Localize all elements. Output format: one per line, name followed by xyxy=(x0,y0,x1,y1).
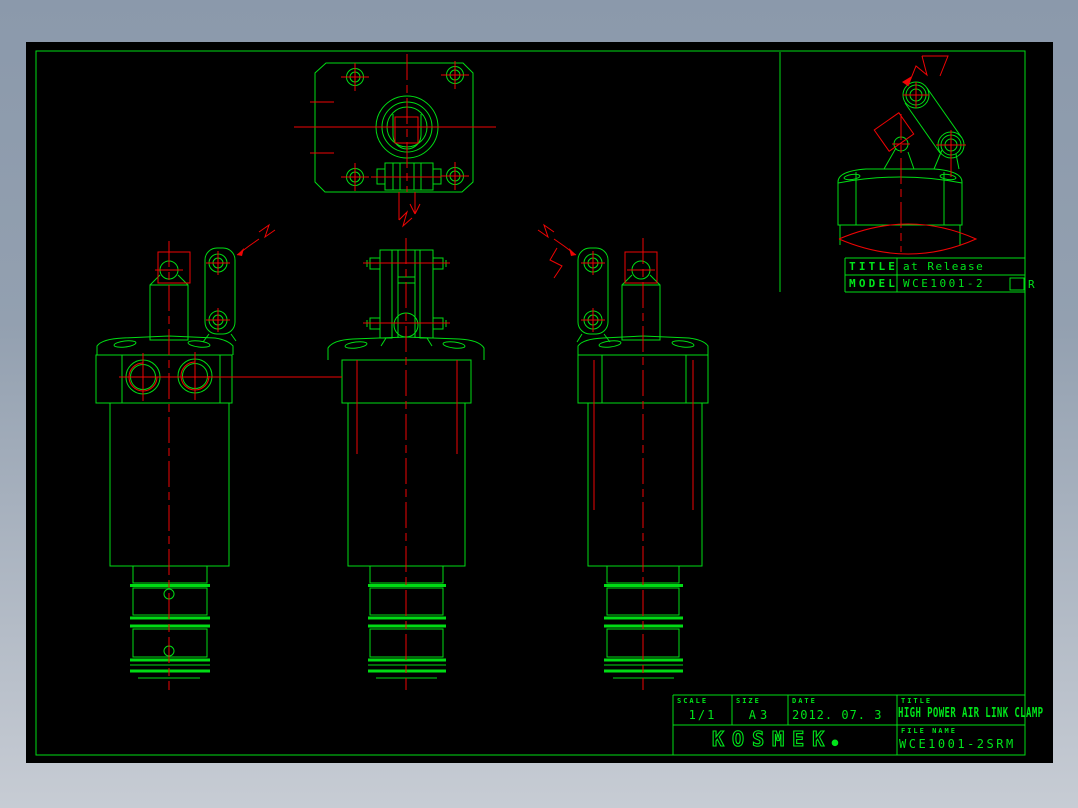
registered-mark-icon: ® xyxy=(832,739,837,749)
detail-model-suffix: R xyxy=(1028,279,1036,290)
detail-title-label: TITLE xyxy=(849,261,898,272)
company-name: KOSMEK xyxy=(712,727,832,751)
scale-label: SCALE xyxy=(677,698,708,705)
date-value: 2012. 07. 3 xyxy=(792,709,882,721)
cad-drawing xyxy=(26,42,1053,763)
release-detail-view xyxy=(780,52,976,292)
drawing-title-value: HIGH POWER AIR LINK CLAMP xyxy=(898,708,1043,722)
left-side-view xyxy=(96,225,335,690)
size-label: SIZE xyxy=(736,698,761,705)
detail-title-value: at Release xyxy=(903,261,984,272)
detail-model-value: WCE1001-2 xyxy=(903,278,985,289)
cad-viewport: TITLE at Release MODEL WCE1001-2 R SCALE… xyxy=(26,42,1053,763)
company-logo: KOSMEK® xyxy=(712,729,838,749)
front-view xyxy=(316,238,484,690)
top-view xyxy=(294,54,496,226)
drawing-title-label: TITLE xyxy=(901,698,932,705)
right-side-view xyxy=(538,225,708,690)
date-label: DATE xyxy=(792,698,817,705)
scale-value: 1/1 xyxy=(673,709,732,721)
size-value: A3 xyxy=(732,709,788,721)
file-name-label: FILE NAME xyxy=(901,728,957,735)
file-name-value: WCE1001-2SRM xyxy=(899,738,1016,750)
detail-model-label: MODEL xyxy=(849,278,898,289)
